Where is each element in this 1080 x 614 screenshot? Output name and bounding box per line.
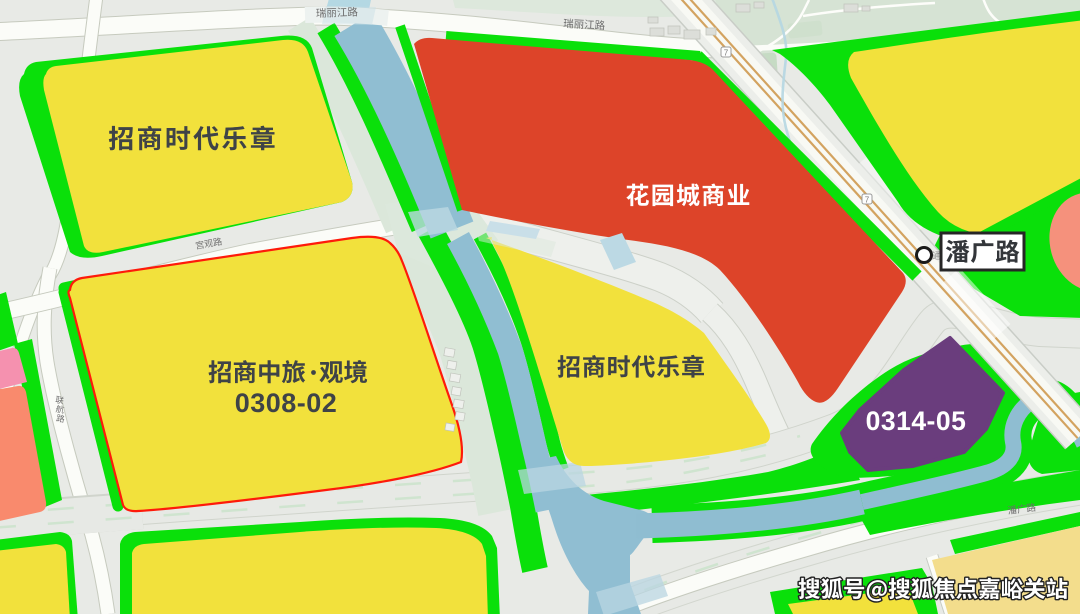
svg-text:7: 7 xyxy=(865,196,870,205)
svg-text:7: 7 xyxy=(724,49,729,58)
svg-text:0314-05: 0314-05 xyxy=(866,406,967,436)
svg-text:0308-02: 0308-02 xyxy=(235,388,338,418)
